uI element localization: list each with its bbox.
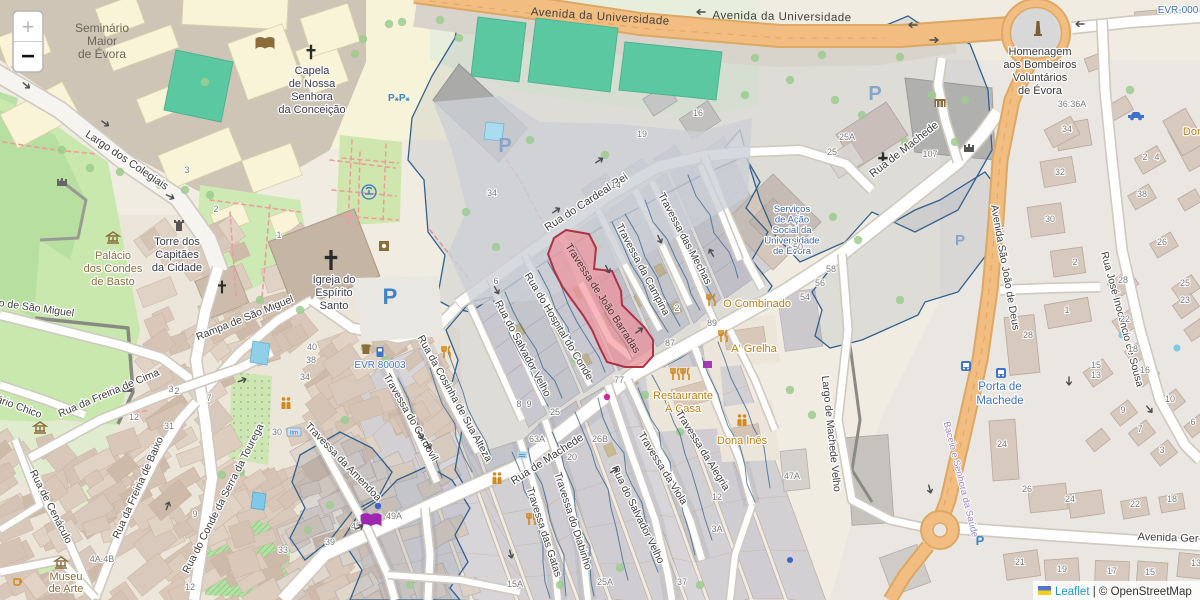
svg-text:Senhora: Senhora — [291, 91, 333, 103]
svg-text:39: 39 — [325, 537, 335, 547]
svg-text:P: P — [868, 83, 881, 105]
svg-text:25: 25 — [550, 407, 560, 417]
svg-text:24: 24 — [1065, 494, 1075, 504]
svg-text:6: 6 — [493, 276, 498, 286]
svg-text:38: 38 — [306, 355, 316, 365]
svg-text:15A: 15A — [507, 579, 523, 589]
svg-text:25: 25 — [827, 147, 837, 157]
svg-text:Social da: Social da — [772, 225, 812, 236]
svg-text:7: 7 — [206, 393, 211, 403]
svg-text:77: 77 — [614, 375, 624, 385]
svg-text:87: 87 — [665, 338, 675, 348]
svg-text:de Évora: de Évora — [1018, 84, 1063, 97]
svg-text:de Nossa: de Nossa — [289, 78, 336, 90]
svg-text:17: 17 — [1107, 566, 1117, 576]
svg-text:12: 12 — [185, 582, 195, 592]
svg-text:54: 54 — [800, 292, 810, 302]
svg-text:Restaurante: Restaurante — [653, 390, 713, 402]
svg-text:Don: Don — [1183, 126, 1200, 138]
svg-text:P: P — [498, 135, 511, 157]
svg-text:Machede: Machede — [976, 395, 1023, 407]
svg-text:13: 13 — [1191, 558, 1200, 568]
svg-text:Seminário: Seminário — [75, 21, 129, 35]
svg-text:33: 33 — [278, 545, 288, 555]
svg-text:30: 30 — [1045, 214, 1055, 224]
svg-text:25A: 25A — [597, 577, 613, 587]
svg-text:6: 6 — [1190, 417, 1195, 427]
svg-text:P: P — [383, 284, 398, 309]
svg-text:A' Grelha: A' Grelha — [731, 343, 777, 355]
svg-text:aos Bombeiros: aos Bombeiros — [1003, 59, 1077, 71]
svg-text:3: 3 — [184, 165, 189, 175]
svg-text:22: 22 — [1130, 499, 1140, 509]
svg-text:Museu: Museu — [49, 571, 82, 583]
svg-text:9: 9 — [192, 509, 197, 519]
svg-text:da Conceição: da Conceição — [278, 104, 345, 116]
svg-text:Avenida da Universidade: Avenida da Universidade — [712, 10, 851, 24]
svg-text:Avenida Ger: Avenida Ger — [1137, 531, 1199, 545]
svg-text:1: 1 — [276, 230, 281, 240]
svg-text:13: 13 — [1091, 370, 1101, 380]
svg-text:Santo: Santo — [320, 300, 349, 312]
svg-text:Porta de: Porta de — [978, 381, 1021, 393]
svg-text:de Ação: de Ação — [775, 215, 809, 226]
svg-text:O Combinado: O Combinado — [723, 298, 791, 310]
svg-text:47A: 47A — [784, 471, 800, 481]
svg-text:12: 12 — [129, 412, 139, 422]
svg-text:de Basto: de Basto — [91, 276, 134, 288]
svg-text:26: 26 — [1022, 484, 1032, 494]
svg-text:itm: itm — [290, 431, 298, 437]
svg-text:EVR-000: EVR-000 — [1158, 5, 1199, 16]
svg-text:26: 26 — [1157, 237, 1167, 247]
svg-text:34: 34 — [300, 372, 310, 382]
svg-text:21: 21 — [1015, 557, 1025, 567]
svg-text:Dona Inês: Dona Inês — [717, 435, 768, 447]
svg-text:Torre dos: Torre dos — [154, 236, 200, 248]
svg-text:Capela: Capela — [295, 65, 331, 77]
svg-text:2: 2 — [174, 386, 179, 396]
svg-text:28: 28 — [1118, 275, 1128, 285]
svg-text:107: 107 — [922, 149, 937, 159]
svg-text:9: 9 — [1120, 405, 1125, 415]
svg-text:1: 1 — [1064, 305, 1069, 315]
svg-text:4: 4 — [1154, 152, 1159, 162]
svg-text:18: 18 — [1128, 344, 1138, 354]
svg-text:Homenagem: Homenagem — [1009, 46, 1072, 58]
svg-text:16: 16 — [693, 108, 703, 118]
svg-text:30: 30 — [272, 427, 282, 437]
svg-text:2: 2 — [674, 303, 679, 313]
svg-text:da Cidade: da Cidade — [152, 262, 202, 274]
svg-text:20: 20 — [567, 452, 577, 462]
svg-text:Igreja do: Igreja do — [313, 274, 356, 286]
svg-text:28: 28 — [1023, 330, 1033, 340]
svg-text:+: + — [22, 16, 34, 39]
svg-text:15: 15 — [1091, 360, 1101, 370]
svg-text:3: 3 — [168, 384, 173, 394]
svg-text:Palácio: Palácio — [95, 250, 131, 262]
svg-text:Voluntários: Voluntários — [1013, 72, 1068, 84]
svg-text:2: 2 — [1072, 257, 1077, 267]
svg-text:14: 14 — [611, 180, 621, 190]
svg-text:19: 19 — [1057, 564, 1067, 574]
svg-text:dos Condes: dos Condes — [84, 263, 143, 275]
svg-text:49A: 49A — [386, 511, 402, 521]
svg-text:12: 12 — [712, 492, 722, 502]
svg-text:Leaflet | © OpenStreetMap: Leaflet | © OpenStreetMap — [1055, 586, 1192, 598]
svg-text:63A: 63A — [529, 434, 545, 444]
svg-text:34: 34 — [1062, 124, 1072, 134]
svg-text:32: 32 — [1055, 167, 1065, 177]
svg-text:24: 24 — [997, 439, 1007, 449]
svg-text:Capitães: Capitães — [155, 249, 199, 261]
svg-text:26B: 26B — [592, 434, 608, 444]
svg-text:25A: 25A — [839, 132, 855, 142]
svg-text:38: 38 — [1137, 189, 1147, 199]
svg-text:Maior: Maior — [87, 34, 117, 48]
svg-text:50: 50 — [793, 242, 803, 252]
svg-text:16: 16 — [1140, 365, 1150, 375]
svg-text:de Évora: de Évora — [78, 46, 126, 61]
svg-text:19: 19 — [637, 129, 647, 139]
svg-text:31: 31 — [164, 421, 174, 431]
svg-text:Serviços: Serviços — [774, 204, 811, 215]
svg-text:−: − — [21, 43, 35, 70]
svg-text:22: 22 — [1120, 314, 1130, 324]
svg-text:18: 18 — [1167, 494, 1177, 504]
svg-text:de Arte: de Arte — [49, 583, 84, 595]
svg-text:10: 10 — [1165, 394, 1175, 404]
svg-text:36:36A: 36:36A — [1058, 99, 1087, 109]
svg-text:9: 9 — [526, 399, 531, 409]
svg-text:3A: 3A — [711, 524, 722, 534]
svg-text:2: 2 — [1142, 152, 1147, 162]
svg-text:25: 25 — [1180, 278, 1190, 288]
svg-text:3: 3 — [1159, 445, 1164, 455]
svg-text:4A.4B: 4A.4B — [90, 554, 115, 564]
svg-text:56: 56 — [815, 278, 825, 288]
svg-text:58: 58 — [826, 264, 836, 274]
svg-text:89: 89 — [707, 318, 717, 328]
svg-text:34: 34 — [487, 188, 497, 198]
svg-text:23: 23 — [1180, 295, 1190, 305]
svg-text:2: 2 — [213, 204, 218, 214]
svg-text:15: 15 — [1145, 567, 1155, 577]
svg-text:Espírito: Espírito — [315, 287, 352, 299]
svg-text:8: 8 — [516, 399, 521, 409]
svg-text:7: 7 — [1137, 424, 1142, 434]
svg-text:EVR 80003: EVR 80003 — [354, 360, 406, 371]
svg-text:40: 40 — [307, 342, 317, 352]
svg-text:P: P — [955, 232, 965, 249]
svg-text:37: 37 — [677, 577, 687, 587]
